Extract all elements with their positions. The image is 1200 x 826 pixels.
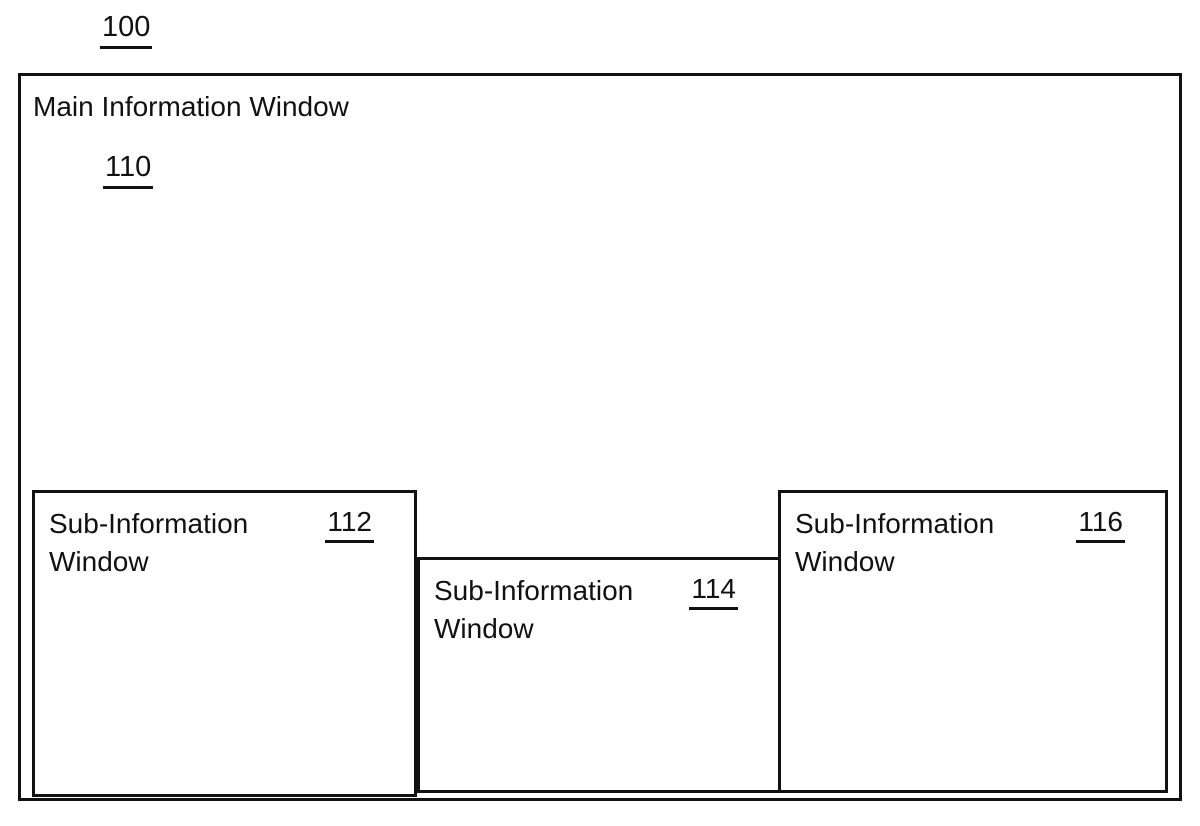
sub-window-112-reference: 112 [325,507,374,543]
figure-reference-label: 100 [100,12,152,49]
sub-window-114-reference: 114 [689,574,738,610]
sub-window-114-title: Sub-Information Window [434,572,633,648]
sub-window-116-title: Sub-Information Window [795,505,994,581]
sub-window-116-title-line1: Sub-Information [795,508,994,539]
sub-window-114-title-line1: Sub-Information [434,575,633,606]
sub-information-window-112: Sub-Information Window 112 [32,490,417,797]
sub-information-window-116: Sub-Information Window 116 [778,490,1168,793]
sub-window-112-title: Sub-Information Window [49,505,248,581]
main-window-reference: 110 [103,152,153,189]
patent-figure: 100 Main Information Window 110 Sub-Info… [0,0,1200,826]
sub-window-112-title-line2: Window [49,546,149,577]
main-window-title: Main Information Window [33,90,349,124]
sub-window-114-title-line2: Window [434,613,534,644]
main-information-window: Main Information Window 110 Sub-Informat… [18,73,1182,801]
sub-window-116-reference: 116 [1076,507,1125,543]
sub-window-112-title-line1: Sub-Information [49,508,248,539]
sub-information-window-114: Sub-Information Window 114 [417,557,781,793]
sub-window-116-title-line2: Window [795,546,895,577]
